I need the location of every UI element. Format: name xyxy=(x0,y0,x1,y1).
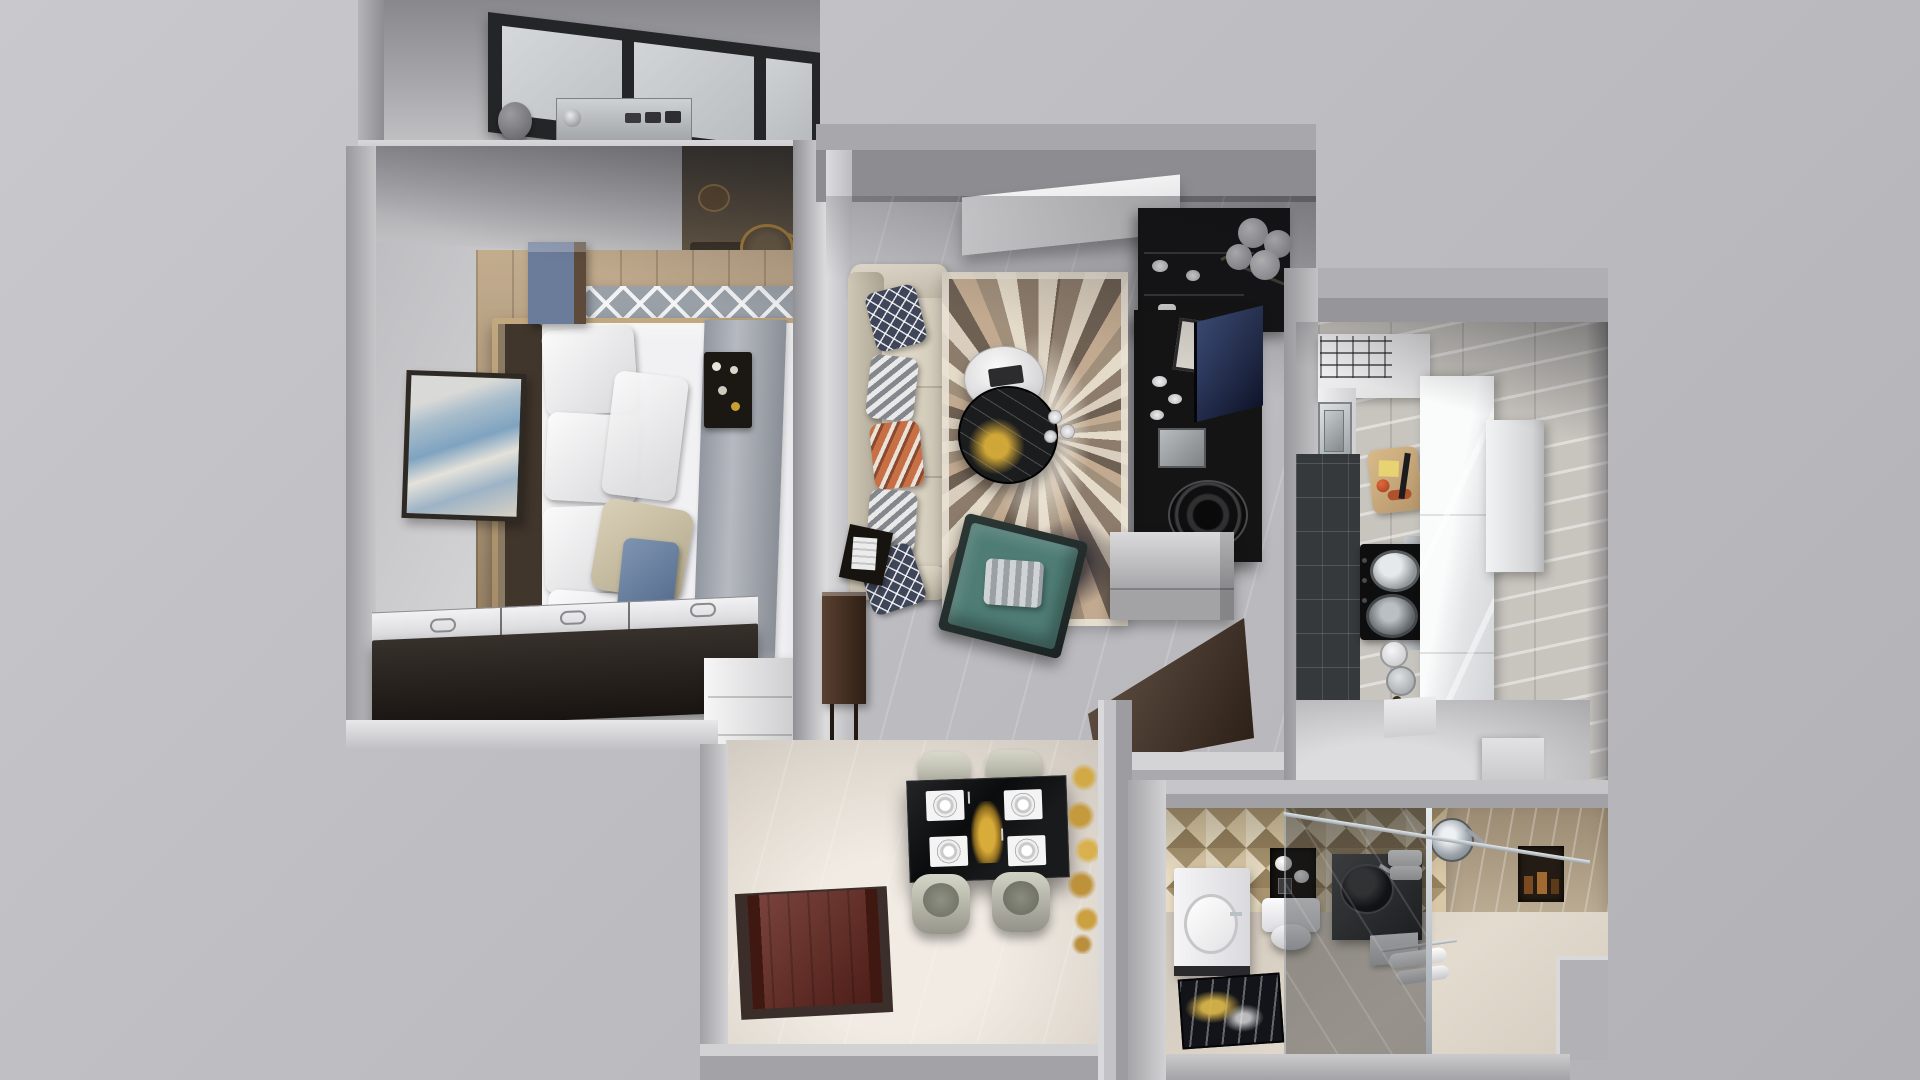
pot xyxy=(1370,550,1420,592)
gold-wall-art xyxy=(1068,762,1100,954)
refrigerator xyxy=(1486,420,1544,572)
tray-bottle xyxy=(730,366,738,374)
place-setting xyxy=(929,836,968,867)
washer-knob xyxy=(645,112,661,123)
bathroom-interior xyxy=(1166,808,1608,1060)
chevron-pillow xyxy=(865,354,919,423)
white-dish xyxy=(1152,260,1168,272)
basket xyxy=(698,184,730,212)
console-top-edge xyxy=(822,592,866,596)
cutlery xyxy=(968,792,970,804)
red-door-mat xyxy=(747,889,883,1010)
bench-seam xyxy=(500,608,502,638)
bathroom-west-wall xyxy=(1128,780,1166,1080)
bedroom-bottom-wall xyxy=(346,720,718,750)
jar xyxy=(1386,666,1416,696)
pan xyxy=(1366,594,1418,638)
gold-marble-mat xyxy=(1178,973,1285,1050)
orange-accent-pillow xyxy=(869,420,926,491)
cabinet-side xyxy=(1220,532,1234,620)
chest-groove xyxy=(708,696,792,698)
gas-cooktop xyxy=(1360,544,1424,640)
stainless-sink xyxy=(1318,402,1352,462)
entry-west-wall xyxy=(700,744,728,1080)
place-setting xyxy=(926,790,965,821)
bench-handle xyxy=(690,602,716,617)
gold-centerpiece xyxy=(970,800,1004,863)
mat-stripes xyxy=(747,889,883,1010)
cabinet-shading xyxy=(1110,532,1234,620)
balcony-left-wall xyxy=(358,0,384,158)
washer-knob xyxy=(665,111,681,123)
nightstand-side xyxy=(574,242,586,324)
dining-chair xyxy=(912,874,970,934)
white-bowl xyxy=(1168,394,1182,404)
counter-step xyxy=(1384,696,1436,738)
dining-east-wall xyxy=(1098,700,1132,1080)
chair-seat-hollow xyxy=(923,883,959,917)
table-tray xyxy=(988,365,1024,388)
bed-pillow-front xyxy=(601,370,690,502)
plant-pompom xyxy=(1226,244,1252,270)
bench-handle xyxy=(560,610,586,625)
oval-basin xyxy=(1184,894,1238,954)
tv-screen xyxy=(1194,305,1263,422)
cheese xyxy=(1379,460,1400,477)
cooktop-knob xyxy=(1362,578,1367,583)
walnut-console xyxy=(822,592,866,704)
faucet xyxy=(1230,912,1242,916)
washer-knob xyxy=(625,113,641,123)
bench-seam xyxy=(628,602,630,632)
room-balcony xyxy=(358,0,820,158)
breakfast-tray xyxy=(704,352,752,428)
white-bowl xyxy=(1150,410,1164,420)
nightstand-top xyxy=(528,242,586,252)
glass-shower-partition xyxy=(1284,808,1432,1060)
coastal-wall-art xyxy=(401,370,526,522)
tray-gold-item xyxy=(731,402,740,411)
tray-bottle xyxy=(712,362,721,371)
cutlery xyxy=(1001,828,1003,840)
tv-media-wall xyxy=(1134,310,1262,562)
room-dining-entry xyxy=(700,700,1132,1080)
vent-grid xyxy=(1320,336,1392,378)
entry-bottom-wall xyxy=(700,1044,1132,1080)
white-dish xyxy=(1186,270,1200,281)
cabinet-seam xyxy=(1110,588,1234,590)
place-setting xyxy=(1004,789,1043,820)
bathroom-bottom-wall xyxy=(1166,1054,1570,1080)
dining-chair xyxy=(992,872,1050,932)
niche-bottle xyxy=(1537,872,1547,894)
place-setting xyxy=(1007,835,1046,866)
black-dining-table xyxy=(906,775,1069,883)
chair-seat-hollow xyxy=(1003,881,1039,915)
plant-pompom xyxy=(1250,250,1280,280)
white-vanity xyxy=(1174,868,1250,976)
tv-glare xyxy=(1197,305,1263,421)
tea-cup xyxy=(1060,424,1075,439)
room-bathroom xyxy=(1128,780,1608,1080)
room-bedroom xyxy=(346,146,824,750)
sink-basin xyxy=(1324,410,1344,452)
room-kitchen xyxy=(1284,268,1608,794)
blue-nightstand xyxy=(528,242,586,324)
jar xyxy=(1380,640,1408,668)
dark-tile-backsplash xyxy=(1296,454,1360,702)
tea-cup xyxy=(1048,410,1062,424)
white-bowl xyxy=(1152,376,1167,387)
tile-grid xyxy=(1296,454,1360,702)
niche-bottle xyxy=(1524,876,1533,894)
window-pane xyxy=(766,58,812,152)
cooktop-knob xyxy=(1362,598,1367,603)
washing-machine xyxy=(556,98,692,144)
gray-wall-cabinet xyxy=(1110,532,1234,620)
cooktop-knob xyxy=(1362,558,1367,563)
cutting-board xyxy=(1367,446,1423,515)
striped-cushion xyxy=(983,558,1044,608)
niche-bottle xyxy=(1551,879,1559,894)
steel-box xyxy=(1158,428,1206,468)
floorplan-render xyxy=(0,0,1920,1080)
black-marble-coffee-table xyxy=(958,386,1058,484)
dining-set xyxy=(900,748,1082,990)
tray-bottle xyxy=(718,386,727,395)
magazine xyxy=(851,537,877,571)
bathroom-notch-wall xyxy=(1556,956,1608,1060)
planter-pot xyxy=(498,102,532,140)
bench-handle xyxy=(430,618,456,633)
glass-frame-vertical xyxy=(1426,808,1432,1060)
washer-dial xyxy=(563,109,581,127)
tea-cup xyxy=(1044,430,1057,443)
